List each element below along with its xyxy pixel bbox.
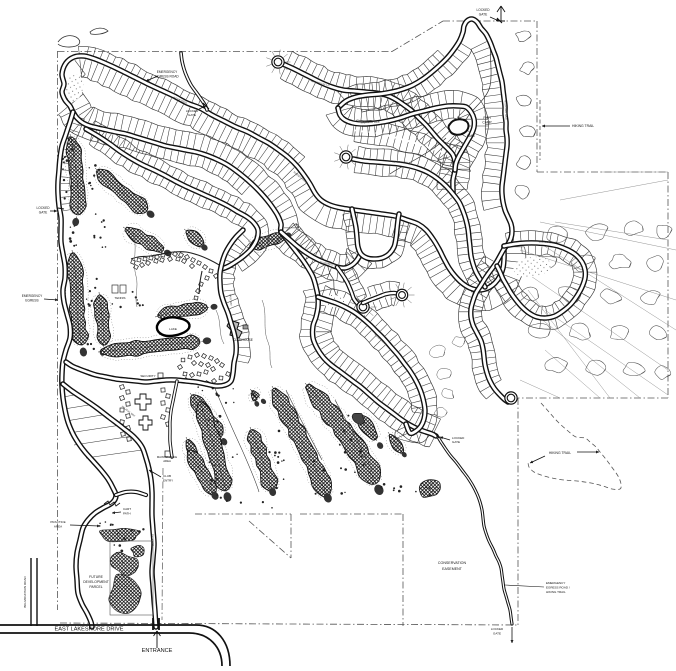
svg-text:CART: CART [123, 507, 131, 511]
svg-text:EGRESS ROAD /: EGRESS ROAD / [546, 586, 570, 590]
svg-text:EGRESS ROAD: EGRESS ROAD [155, 75, 179, 79]
svg-text:HIKING TRAIL: HIKING TRAIL [572, 124, 594, 128]
svg-text:GATE: GATE [39, 211, 47, 215]
svg-text:GATE: GATE [479, 13, 487, 17]
svg-text:CLUBHOUSE: CLUBHOUSE [233, 338, 253, 342]
svg-text:PRACTICE: PRACTICE [50, 520, 65, 524]
svg-text:EGRESS: EGRESS [25, 299, 38, 303]
svg-text:DEVELOPMENT: DEVELOPMENT [83, 580, 109, 584]
svg-text:LOCKED: LOCKED [491, 627, 504, 631]
svg-text:TENNIS: TENNIS [114, 296, 125, 300]
svg-text:EMERGENCY: EMERGENCY [546, 581, 565, 585]
svg-text:LAKE: LAKE [169, 327, 177, 331]
svg-text:ENTRANCE: ENTRANCE [142, 648, 173, 654]
svg-text:GATE: GATE [452, 440, 460, 444]
svg-text:EASEMENT: EASEMENT [442, 567, 463, 571]
svg-text:LAKE: LAKE [467, 134, 475, 138]
svg-text:ENTRY: ENTRY [163, 479, 173, 483]
svg-text:FUTURE: FUTURE [89, 575, 103, 579]
svg-text:LOCKED: LOCKED [476, 8, 490, 12]
svg-text:BIG MOUNTAIN ROAD: BIG MOUNTAIN ROAD [23, 576, 27, 608]
svg-text:PARCEL: PARCEL [89, 585, 102, 589]
svg-text:HIKING TRAIL: HIKING TRAIL [546, 590, 566, 594]
svg-text:FISH: FISH [483, 116, 491, 120]
svg-text:HIKING TRAIL: HIKING TRAIL [549, 451, 571, 455]
svg-text:AREA: AREA [163, 459, 171, 463]
svg-text:CAMP: CAMP [482, 121, 491, 125]
svg-text:EMERGENCY: EMERGENCY [22, 294, 43, 298]
svg-text:ENTRY DR: ENTRY DR [151, 534, 154, 547]
svg-text:LOCKED: LOCKED [36, 206, 50, 210]
svg-text:GATE: GATE [188, 113, 196, 117]
svg-text:PATH: PATH [123, 512, 131, 516]
svg-text:CONSERVATION: CONSERVATION [438, 561, 467, 565]
svg-text:EMERGENCY: EMERGENCY [157, 70, 178, 74]
svg-text:CLUB: CLUB [163, 474, 171, 478]
svg-text:AREA: AREA [54, 525, 62, 529]
svg-text:EAST LAKESHORE DRIVE: EAST LAKESHORE DRIVE [55, 627, 124, 633]
svg-text:GATE: GATE [493, 632, 501, 636]
svg-text:SECURITY: SECURITY [140, 374, 155, 378]
